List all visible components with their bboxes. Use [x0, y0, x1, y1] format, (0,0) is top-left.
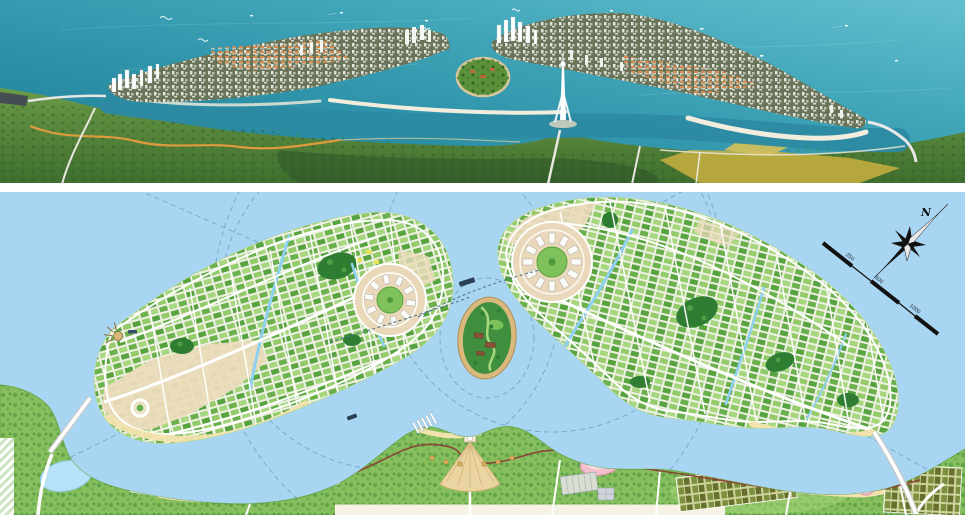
panel-divider	[0, 183, 965, 192]
circular-plaza-right	[512, 222, 592, 302]
aerial-render-panel	[0, 0, 965, 183]
masterplan-map: N 250 500 1000	[0, 192, 965, 515]
plaza-block	[598, 488, 614, 500]
micro-label	[128, 330, 137, 334]
masterplan-board: N 250 500 1000	[0, 0, 965, 515]
north-label: N	[920, 206, 932, 219]
masterplan-map-panel: N 250 500 1000	[0, 192, 965, 515]
stripe-zone	[0, 438, 14, 515]
center-island-render	[457, 58, 509, 96]
aerial-render	[0, 0, 965, 183]
circular-plaza-left	[354, 264, 426, 336]
